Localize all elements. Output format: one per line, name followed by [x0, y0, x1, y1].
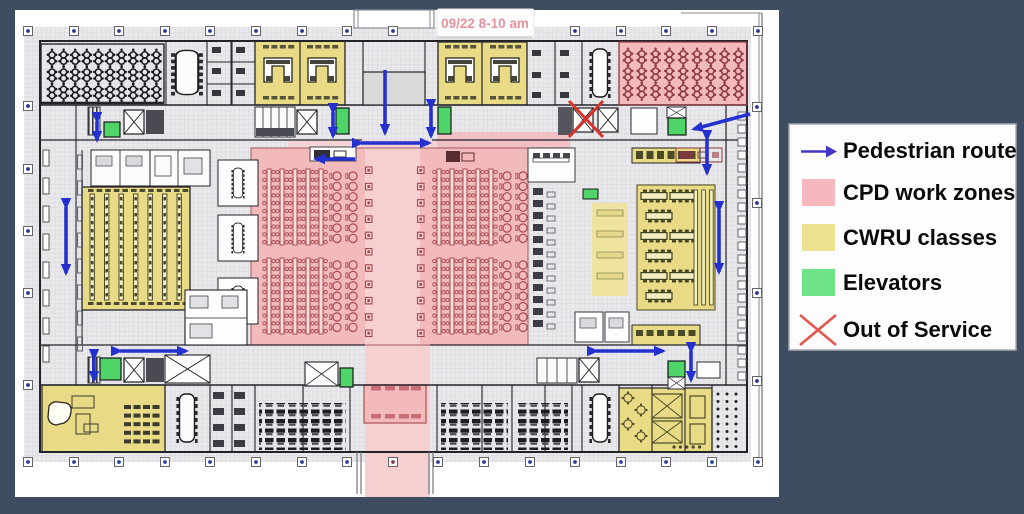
svg-text:CWRU classes: CWRU classes [843, 225, 997, 250]
svg-text:09/22 8-10 am: 09/22 8-10 am [441, 16, 529, 31]
svg-text:Elevators: Elevators [843, 270, 942, 295]
svg-text:Pedestrian route: Pedestrian route [843, 138, 1017, 163]
svg-text:Out of Service: Out of Service [843, 317, 992, 342]
svg-text:CPD work zones: CPD work zones [843, 180, 1015, 205]
